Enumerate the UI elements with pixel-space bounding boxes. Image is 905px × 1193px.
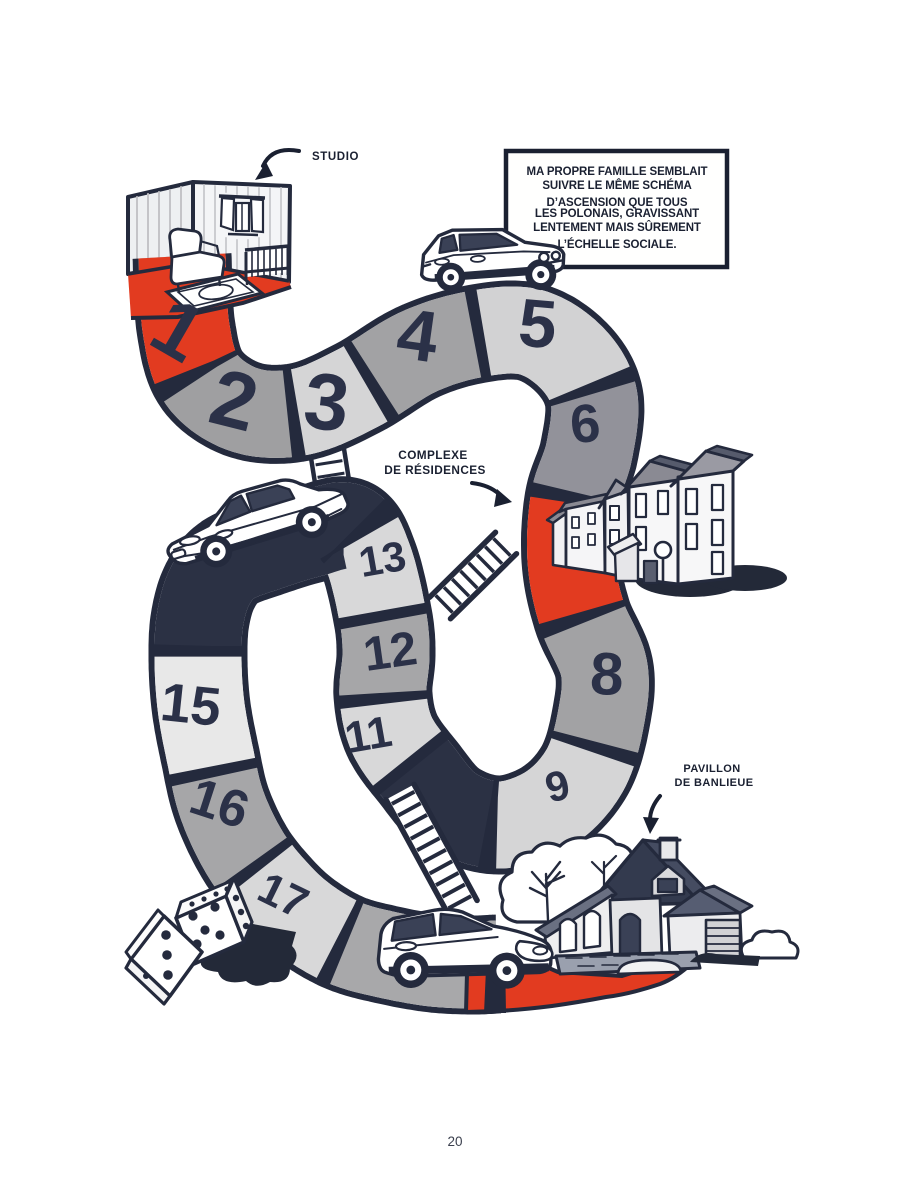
svg-text:L’ÉCHELLE SOCIALE.: L’ÉCHELLE SOCIALE. bbox=[558, 238, 677, 251]
svg-text:12: 12 bbox=[360, 622, 420, 682]
svg-text:STUDIO: STUDIO bbox=[312, 151, 359, 163]
svg-text:15: 15 bbox=[158, 672, 224, 738]
svg-text:SUIVRE LE MÊME SCHÉMA: SUIVRE LE MÊME SCHÉMA bbox=[542, 179, 691, 192]
svg-text:COMPLEXE: COMPLEXE bbox=[398, 448, 467, 462]
svg-text:MA PROPRE FAMILLE SEMBLAIT: MA PROPRE FAMILLE SEMBLAIT bbox=[527, 166, 708, 178]
svg-text:20: 20 bbox=[447, 1134, 462, 1149]
svg-text:LENTEMENT MAIS SÛREMENT: LENTEMENT MAIS SÛREMENT bbox=[533, 221, 701, 234]
svg-text:5: 5 bbox=[516, 284, 560, 363]
svg-text:DE RÉSIDENCES: DE RÉSIDENCES bbox=[384, 463, 486, 477]
svg-text:DE BANLIEUE: DE BANLIEUE bbox=[675, 777, 754, 789]
svg-text:11: 11 bbox=[341, 707, 395, 763]
svg-text:8: 8 bbox=[589, 640, 625, 708]
svg-text:LES POLONAIS, GRAVISSANT: LES POLONAIS, GRAVISSANT bbox=[535, 208, 699, 220]
svg-text:PAVILLON: PAVILLON bbox=[683, 763, 740, 775]
svg-text:13: 13 bbox=[355, 532, 409, 586]
svg-text:3: 3 bbox=[300, 355, 354, 448]
svg-text:6: 6 bbox=[568, 393, 603, 455]
